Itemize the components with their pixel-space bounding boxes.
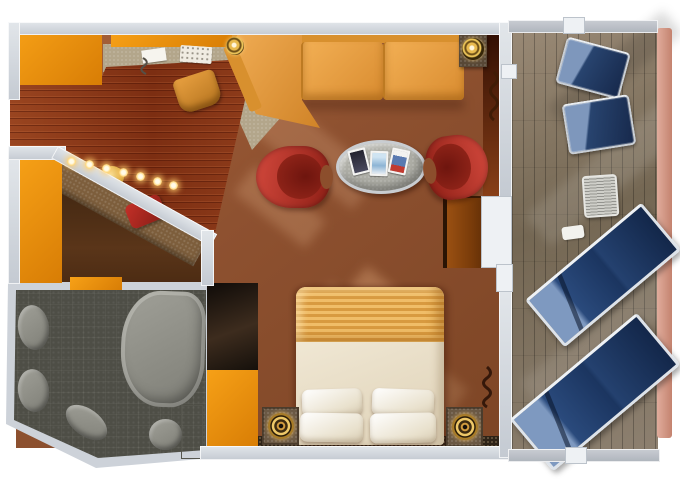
balcony-sliding-door-step: [496, 264, 513, 292]
balcony-post-top: [563, 17, 585, 34]
wardrobe-lower: [207, 368, 258, 448]
dark-closet: [207, 283, 258, 370]
bathtub: [119, 290, 207, 409]
bed-striped-blanket: [296, 287, 444, 342]
magazine: [370, 151, 389, 177]
sofa-shadow: [300, 99, 464, 109]
wall-balcony-divider-lower: [499, 290, 512, 458]
sofa-table-lamp: [462, 38, 484, 60]
wardrobe-top-left: [10, 28, 102, 85]
balcony-deck-chair: [561, 94, 636, 155]
vanity-light: [136, 172, 145, 181]
wardrobe-left: [16, 156, 62, 283]
wall-vanity-stub: [201, 230, 214, 286]
divider-post: [501, 64, 517, 79]
wall-bottom: [200, 446, 512, 460]
wall-left-lower: [8, 158, 20, 284]
patio-table: [582, 174, 620, 218]
vanity-light: [153, 177, 162, 186]
vanity-light: [119, 168, 128, 177]
balcony-sliding-door: [481, 196, 512, 268]
vanity-light: [102, 164, 111, 173]
telephone: [179, 45, 212, 64]
wall-left-upper: [8, 22, 20, 100]
balcony-post-bottom: [565, 447, 587, 464]
wall-balcony-divider-upper: [499, 22, 512, 198]
wall-top: [8, 22, 512, 35]
sofa-seat-2: [383, 42, 464, 100]
vanity-light: [85, 160, 94, 169]
vanity-light: [169, 181, 178, 190]
phone-cord: [140, 56, 160, 76]
toilet: [149, 419, 182, 450]
bedroom-plant: [478, 365, 496, 409]
sofa-seat-1: [301, 42, 383, 100]
floor-plan: [0, 0, 680, 486]
vanity-light: [67, 157, 76, 166]
bed-pillow: [370, 412, 437, 443]
spiral-lamp-left: [268, 413, 294, 439]
bed-pillow: [300, 412, 363, 442]
spiral-lamp-right: [452, 414, 478, 440]
bathroom-door: [70, 277, 122, 290]
desk-lamp: [226, 37, 244, 55]
red-armchair-left: [256, 146, 330, 208]
